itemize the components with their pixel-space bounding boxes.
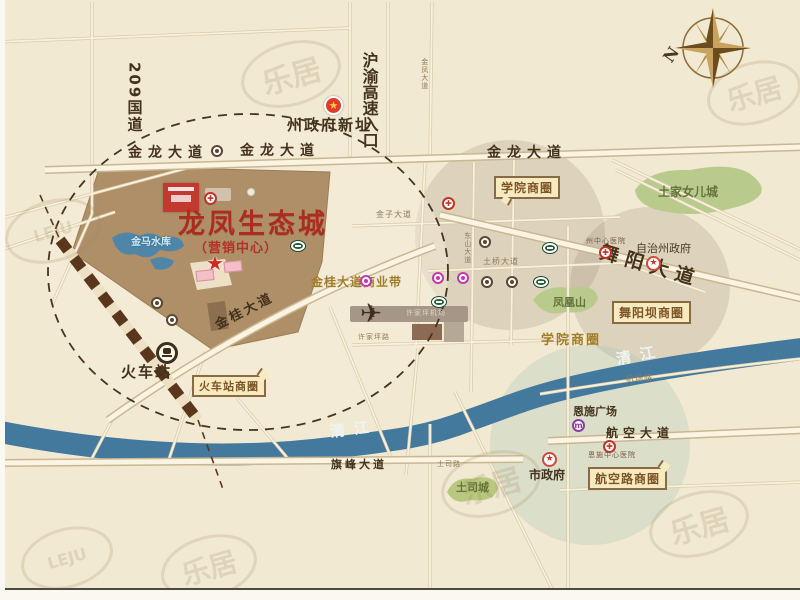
state-hospital-label: 州中心医院: [586, 238, 626, 246]
zone-hangkonglu: 航空路商圈: [588, 467, 667, 490]
road-label-xujiaping: 许家坪路: [358, 334, 390, 342]
hotel-poi-icon: [479, 236, 491, 248]
airport-label: 许家坪机场: [406, 310, 446, 318]
road-label-jichang: 机场路: [626, 374, 654, 385]
building-tag: [223, 260, 242, 273]
river-label-west: 清江: [329, 418, 379, 440]
hotel-poi-icon: [151, 297, 163, 309]
airplane-icon: ✈: [360, 300, 382, 329]
train-station-icon: [156, 342, 178, 364]
shopping-poi-icon: [432, 272, 444, 284]
central-hospital-label: 恩施中心医院: [588, 452, 636, 460]
school-poi-icon: [291, 241, 305, 251]
gov-new-site-star-icon: ★: [324, 96, 343, 115]
leju-watermark: 乐居: [699, 50, 800, 136]
building-tag: [195, 269, 214, 282]
shopping-poi-icon: [360, 275, 372, 287]
label-layer: 乐居 乐居 LEJU 乐居 乐居 LEJU 乐居 209国道 沪渝高速入口 金龙…: [0, 0, 800, 600]
enshi-square-label: 恩施广场: [573, 406, 617, 418]
city-gov-star-icon: ★: [542, 452, 557, 467]
road-label-jingui: 金桂大道: [213, 291, 277, 333]
school-poi-icon: [534, 277, 548, 287]
road-label-g209: 209国道: [126, 62, 143, 133]
zone-xueyuan-north: 学院商圈: [494, 176, 560, 199]
zone-wuyangba: 舞阳坝商圈: [612, 301, 691, 324]
leju-watermark: LEJU: [0, 188, 109, 275]
poi-dot-icon: [247, 188, 255, 196]
nvercheng-label: 土家女儿城: [658, 186, 718, 199]
hotel-poi-icon: [481, 276, 493, 288]
road-label-dongshan: 东山大道: [463, 232, 471, 264]
compass-north-label: N: [660, 44, 683, 66]
road-label-hangkong: 航空大道: [606, 427, 674, 440]
hotel-poi-icon: [211, 145, 223, 157]
school-poi-icon: [432, 297, 446, 307]
hospital-poi-icon: ✚: [442, 197, 455, 210]
zone-xueyuan-south: 学院商圈: [541, 334, 601, 348]
road-label-jinlong-2: 金龙大道: [240, 144, 320, 159]
developer-logo: [163, 183, 199, 212]
road-label-jinfeng: 金凤大道: [420, 58, 428, 90]
road-label-qifeng: 旗峰大道: [331, 459, 387, 471]
train-station-label: 火车站: [121, 364, 172, 381]
bottom-margin: [0, 590, 800, 600]
phoenix-mountain-label: 凤凰山: [553, 297, 586, 309]
state-hospital-icon: ✚: [599, 246, 612, 259]
leju-watermark: 乐居: [433, 439, 549, 529]
hotel-poi-icon: [506, 276, 518, 288]
leju-watermark: 乐居: [641, 479, 757, 569]
gov-new-site-label: 州政府新址: [287, 117, 372, 134]
road-label-jinlong-1: 金龙大道: [128, 146, 208, 161]
project-title: 龙凤生态城: [178, 210, 328, 240]
hotel-poi-icon: [166, 314, 178, 326]
prefecture-gov-star-icon: ★: [646, 256, 661, 271]
road-label-jinzi: 金子大道: [376, 211, 412, 220]
school-poi-icon: [543, 243, 557, 253]
zone-jingui-belt: 金桂大道商业带: [311, 276, 402, 289]
road-label-jinlong-3: 金龙大道: [487, 146, 567, 161]
road-label-tuqiao: 土桥大道: [483, 258, 519, 267]
shopping-poi-icon: [457, 272, 469, 284]
left-margin: [0, 0, 5, 600]
road-label-tusi: 土司路: [437, 461, 461, 469]
enshi-square-icon: m: [572, 419, 585, 432]
river-label-east: 清江: [615, 343, 665, 368]
zone-train-station: 火车站商圈: [192, 375, 266, 397]
reservoir-label: 金马水库: [131, 237, 171, 248]
city-gov-label: 市政府: [529, 469, 565, 482]
hospital-poi-icon: ✚: [204, 192, 217, 205]
prefecture-gov-label: 自治州政府: [636, 243, 691, 255]
tusicheng-label: 土司城: [456, 482, 489, 494]
location-map: 乐居 乐居 LEJU 乐居 乐居 LEJU 乐居 209国道 沪渝高速入口 金龙…: [0, 0, 800, 600]
